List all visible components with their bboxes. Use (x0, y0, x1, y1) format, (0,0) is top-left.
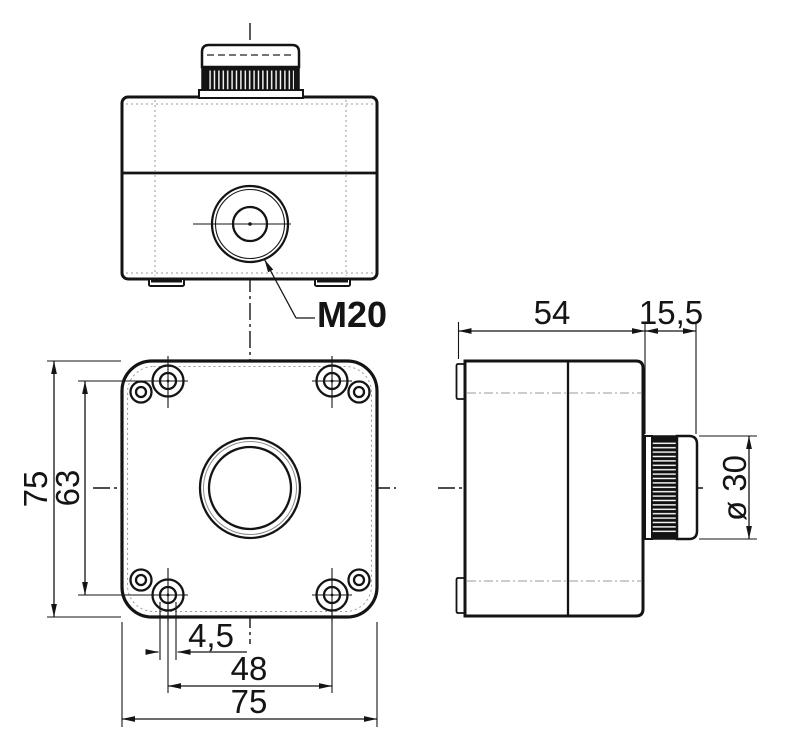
gland-thread-label: M20 (317, 294, 387, 335)
knurl-edge (652, 534, 677, 539)
dim-button-protrusion: 15,5 (639, 294, 703, 434)
enclosure-body (122, 97, 377, 279)
button-cap (202, 45, 299, 67)
technical-drawing-page: M20 (0, 0, 800, 752)
push-button-knob-side (645, 436, 697, 539)
mounting-foot-right (315, 279, 350, 286)
knob-collar-side (645, 436, 652, 539)
dim-label-48: 48 (231, 650, 268, 687)
enclosure-face (122, 361, 377, 617)
face-view (122, 356, 377, 621)
dim-label-4-5: 4,5 (188, 617, 234, 654)
mounting-foot-left (149, 279, 184, 286)
knurled-ring-side (652, 436, 677, 539)
push-button-enclosure-drawing: M20 (0, 0, 800, 752)
knurl-edge (652, 436, 677, 441)
side-view (457, 361, 698, 616)
enclosure-body-side (465, 361, 643, 616)
elevation-view (122, 45, 377, 286)
dim-label-54: 54 (534, 294, 571, 331)
push-button-knob-top (199, 45, 303, 98)
knob-collar (199, 90, 303, 98)
dim-label-15-5: 15,5 (639, 294, 703, 331)
dim-button-diameter: ø 30 (699, 436, 757, 539)
dim-label-75-bottom: 75 (231, 683, 268, 720)
button-cap-side (677, 436, 697, 539)
dim-label-63: 63 (49, 470, 86, 507)
dim-label-dia-30: ø 30 (716, 455, 753, 521)
